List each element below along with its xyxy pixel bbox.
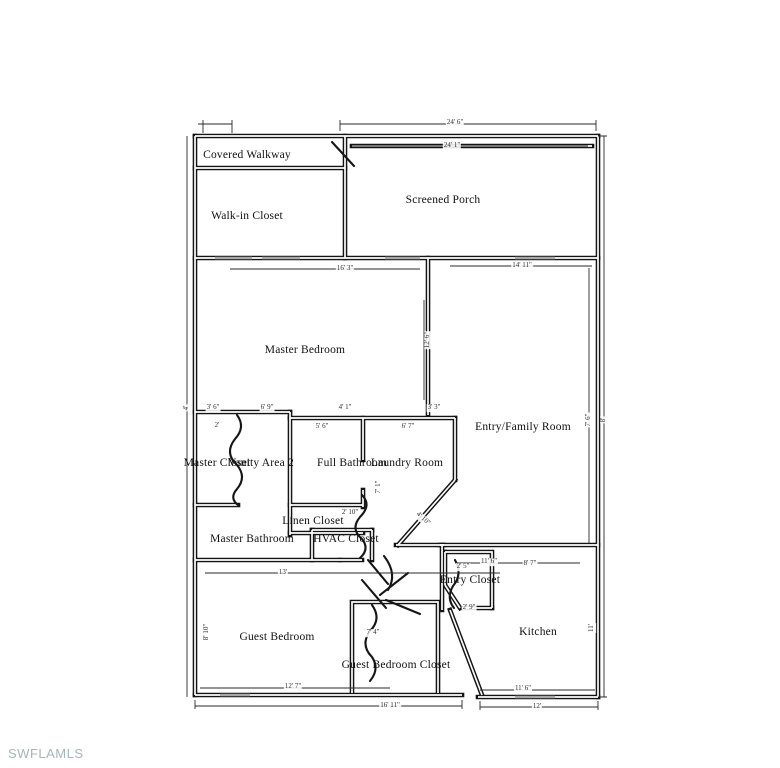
dimension-label: 6' 7" xyxy=(401,423,416,431)
room-label: Covered Walkway xyxy=(203,149,291,161)
room-label: Vanity Area 2 xyxy=(228,457,294,469)
dimension-label: 12' 7" xyxy=(284,683,302,691)
room-label: Guest Bedroom Closet xyxy=(342,659,451,671)
dimension-label: 12' xyxy=(532,703,542,711)
dimension-label: 8' xyxy=(600,417,608,424)
dimension-label: 6' 9" xyxy=(260,404,275,412)
room-label: Guest Bedroom xyxy=(239,631,314,643)
dimension-label: 13' xyxy=(278,569,288,577)
dimension-label: 12' 6" xyxy=(424,331,432,349)
dimension-label: 2' xyxy=(214,422,221,430)
room-label: Kitchen xyxy=(519,626,557,638)
dimension-label: 4' 1" xyxy=(338,404,353,412)
dimension-label: 24' 1" xyxy=(443,142,461,150)
dimension-label: 2' 10" xyxy=(341,509,359,517)
dimension-label: 24' 6" xyxy=(446,119,464,127)
dimension-label: 7' 1" xyxy=(375,480,383,495)
dimension-label: 7' 6" xyxy=(585,413,593,428)
dimension-label: 11' 6" xyxy=(480,558,498,566)
watermark: SWFLAMLS xyxy=(8,746,84,761)
dimension-label: 14' 11" xyxy=(511,262,533,270)
room-label: Linen Closet xyxy=(282,515,344,527)
dimension-label: 16' 3" xyxy=(336,265,354,273)
room-label: Master Bathroom xyxy=(210,533,294,545)
room-label: HVAC Closet xyxy=(313,533,379,545)
floorplan-drawing xyxy=(0,0,780,768)
room-label: Laundry Room xyxy=(371,457,443,469)
floor-plan: SWFLAMLS Covered WalkwayWalk-in ClosetSc… xyxy=(0,0,780,768)
dimension-lines-layer xyxy=(187,120,607,710)
room-label: Walk-in Closet xyxy=(211,210,283,222)
dimension-label: 3' 6" xyxy=(206,404,221,412)
dimension-label: 8' 10" xyxy=(203,623,211,641)
dimension-label: 5' 6" xyxy=(315,423,330,431)
dimension-label: 8' 7" xyxy=(523,560,538,568)
dimension-label: 2' 5" xyxy=(456,563,471,571)
room-label: Master Bedroom xyxy=(265,344,345,356)
dimension-label: 2' 9" xyxy=(462,604,477,612)
dimension-label: 7' 4" xyxy=(366,629,381,637)
room-label: Entry Closet xyxy=(440,574,500,586)
room-label: Entry/Family Room xyxy=(475,421,571,433)
dimension-label: 11' 6" xyxy=(514,685,532,693)
room-label: Screened Porch xyxy=(406,194,481,206)
dimension-label: 4' xyxy=(183,405,191,412)
dimension-label: 11' xyxy=(588,623,596,633)
dimension-label: 16' 11" xyxy=(379,702,401,710)
dimension-label: 3' 3" xyxy=(427,404,442,412)
